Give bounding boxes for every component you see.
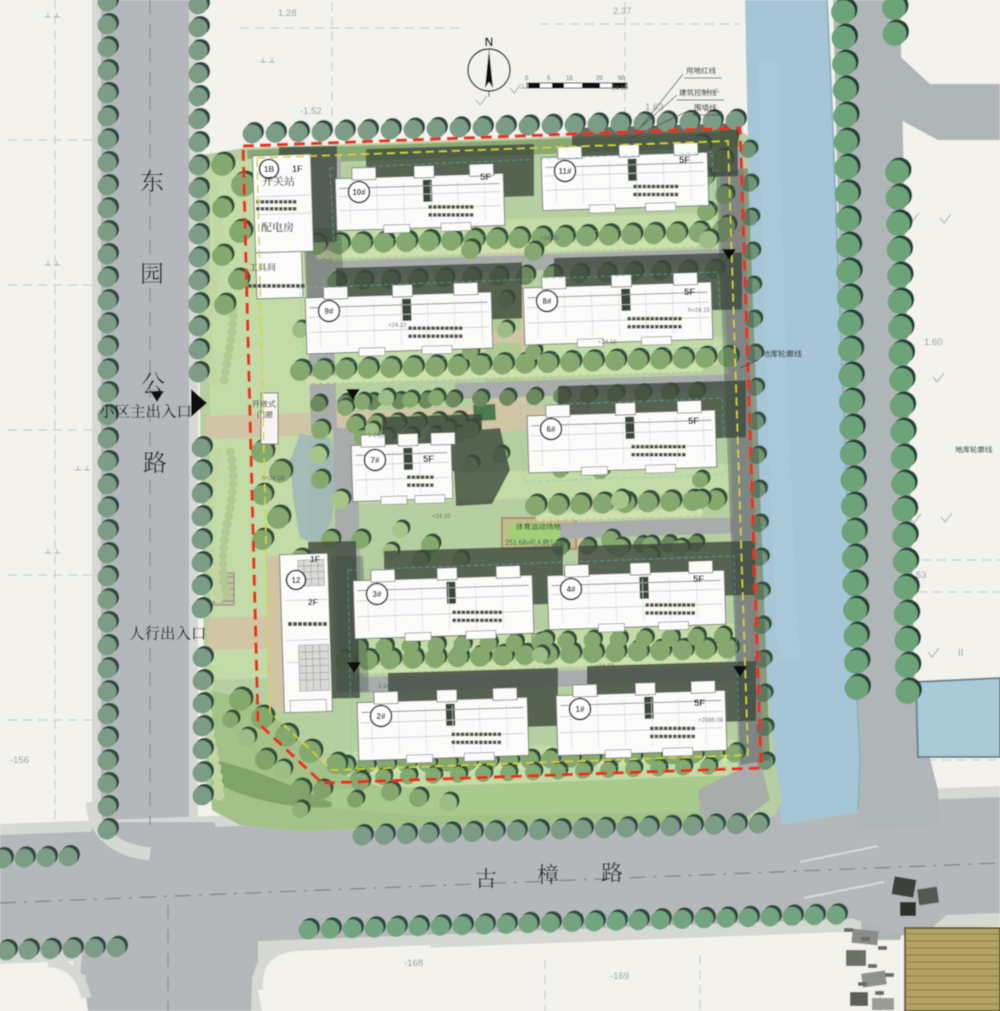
svg-text:5F: 5F bbox=[679, 155, 690, 166]
svg-text:20: 20 bbox=[596, 76, 603, 82]
svg-text:+24.10: +24.10 bbox=[388, 323, 407, 329]
svg-text:+24.18: +24.18 bbox=[598, 340, 617, 346]
svg-text:1F: 1F bbox=[292, 164, 303, 174]
svg-text:+24.10: +24.10 bbox=[432, 514, 451, 520]
svg-text:1B: 1B bbox=[264, 165, 274, 174]
svg-text:+24.10: +24.10 bbox=[540, 236, 559, 242]
svg-text:-156: -156 bbox=[10, 755, 29, 766]
svg-text:5F: 5F bbox=[693, 574, 704, 585]
svg-text:II: II bbox=[958, 648, 964, 659]
svg-text:4#: 4# bbox=[567, 585, 576, 594]
svg-text:6#: 6# bbox=[547, 425, 556, 434]
svg-text:2#: 2# bbox=[377, 712, 386, 721]
svg-text:1.60: 1.60 bbox=[924, 337, 943, 348]
svg-text:3#: 3# bbox=[373, 590, 382, 599]
svg-text:11#: 11# bbox=[559, 167, 572, 176]
svg-text:8#: 8# bbox=[543, 297, 552, 306]
svg-text:+24.1B: +24.1B bbox=[595, 664, 614, 670]
svg-text:1F: 1F bbox=[310, 554, 320, 564]
svg-text:1-24(2.25): 1-24(2.25) bbox=[368, 433, 396, 439]
svg-text:10: 10 bbox=[566, 76, 573, 82]
svg-text:1.28: 1.28 bbox=[278, 8, 297, 19]
svg-text:5F: 5F bbox=[694, 698, 705, 709]
svg-text:7#: 7# bbox=[371, 456, 380, 465]
svg-text:5F: 5F bbox=[480, 172, 491, 183]
svg-text:50: 50 bbox=[618, 76, 625, 82]
svg-text:5F: 5F bbox=[423, 454, 434, 465]
svg-text:-169: -169 bbox=[610, 971, 629, 982]
svg-text:-1.52: -1.52 bbox=[300, 106, 322, 117]
svg-text:2.37: 2.37 bbox=[613, 6, 632, 17]
svg-text:1#: 1# bbox=[576, 705, 585, 714]
svg-text:5F: 5F bbox=[688, 416, 699, 427]
svg-text:9#: 9# bbox=[325, 307, 334, 316]
svg-text:12: 12 bbox=[292, 576, 301, 585]
svg-text:+24.15: +24.15 bbox=[648, 562, 667, 568]
svg-text:-168: -168 bbox=[404, 958, 423, 969]
svg-text:5F: 5F bbox=[684, 287, 695, 298]
svg-text:h=24.1B: h=24.1B bbox=[262, 476, 285, 482]
svg-text:+2086.08: +2086.08 bbox=[698, 718, 724, 724]
svg-text:10#: 10# bbox=[352, 188, 366, 197]
svg-text:1-24(1.50): 1-24(1.50) bbox=[378, 684, 406, 690]
svg-text:h=24.15: h=24.15 bbox=[688, 308, 711, 314]
svg-text:2F: 2F bbox=[308, 597, 318, 607]
svg-text:N: N bbox=[485, 35, 494, 49]
svg-text:24.1B: 24.1B bbox=[612, 86, 628, 92]
